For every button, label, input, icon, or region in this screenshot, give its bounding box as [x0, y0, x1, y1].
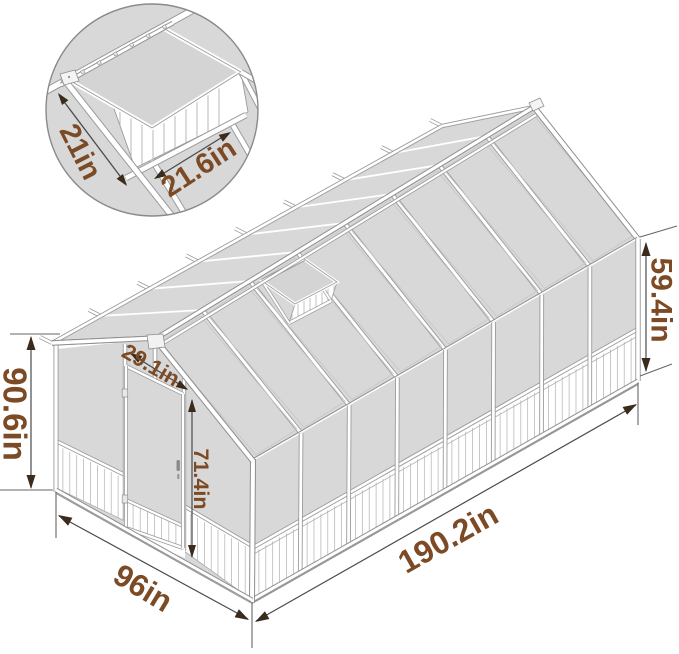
svg-text:90.6in: 90.6in [0, 367, 34, 461]
svg-text:59.4in: 59.4in [645, 257, 678, 342]
svg-text:71.4in: 71.4in [189, 449, 213, 510]
